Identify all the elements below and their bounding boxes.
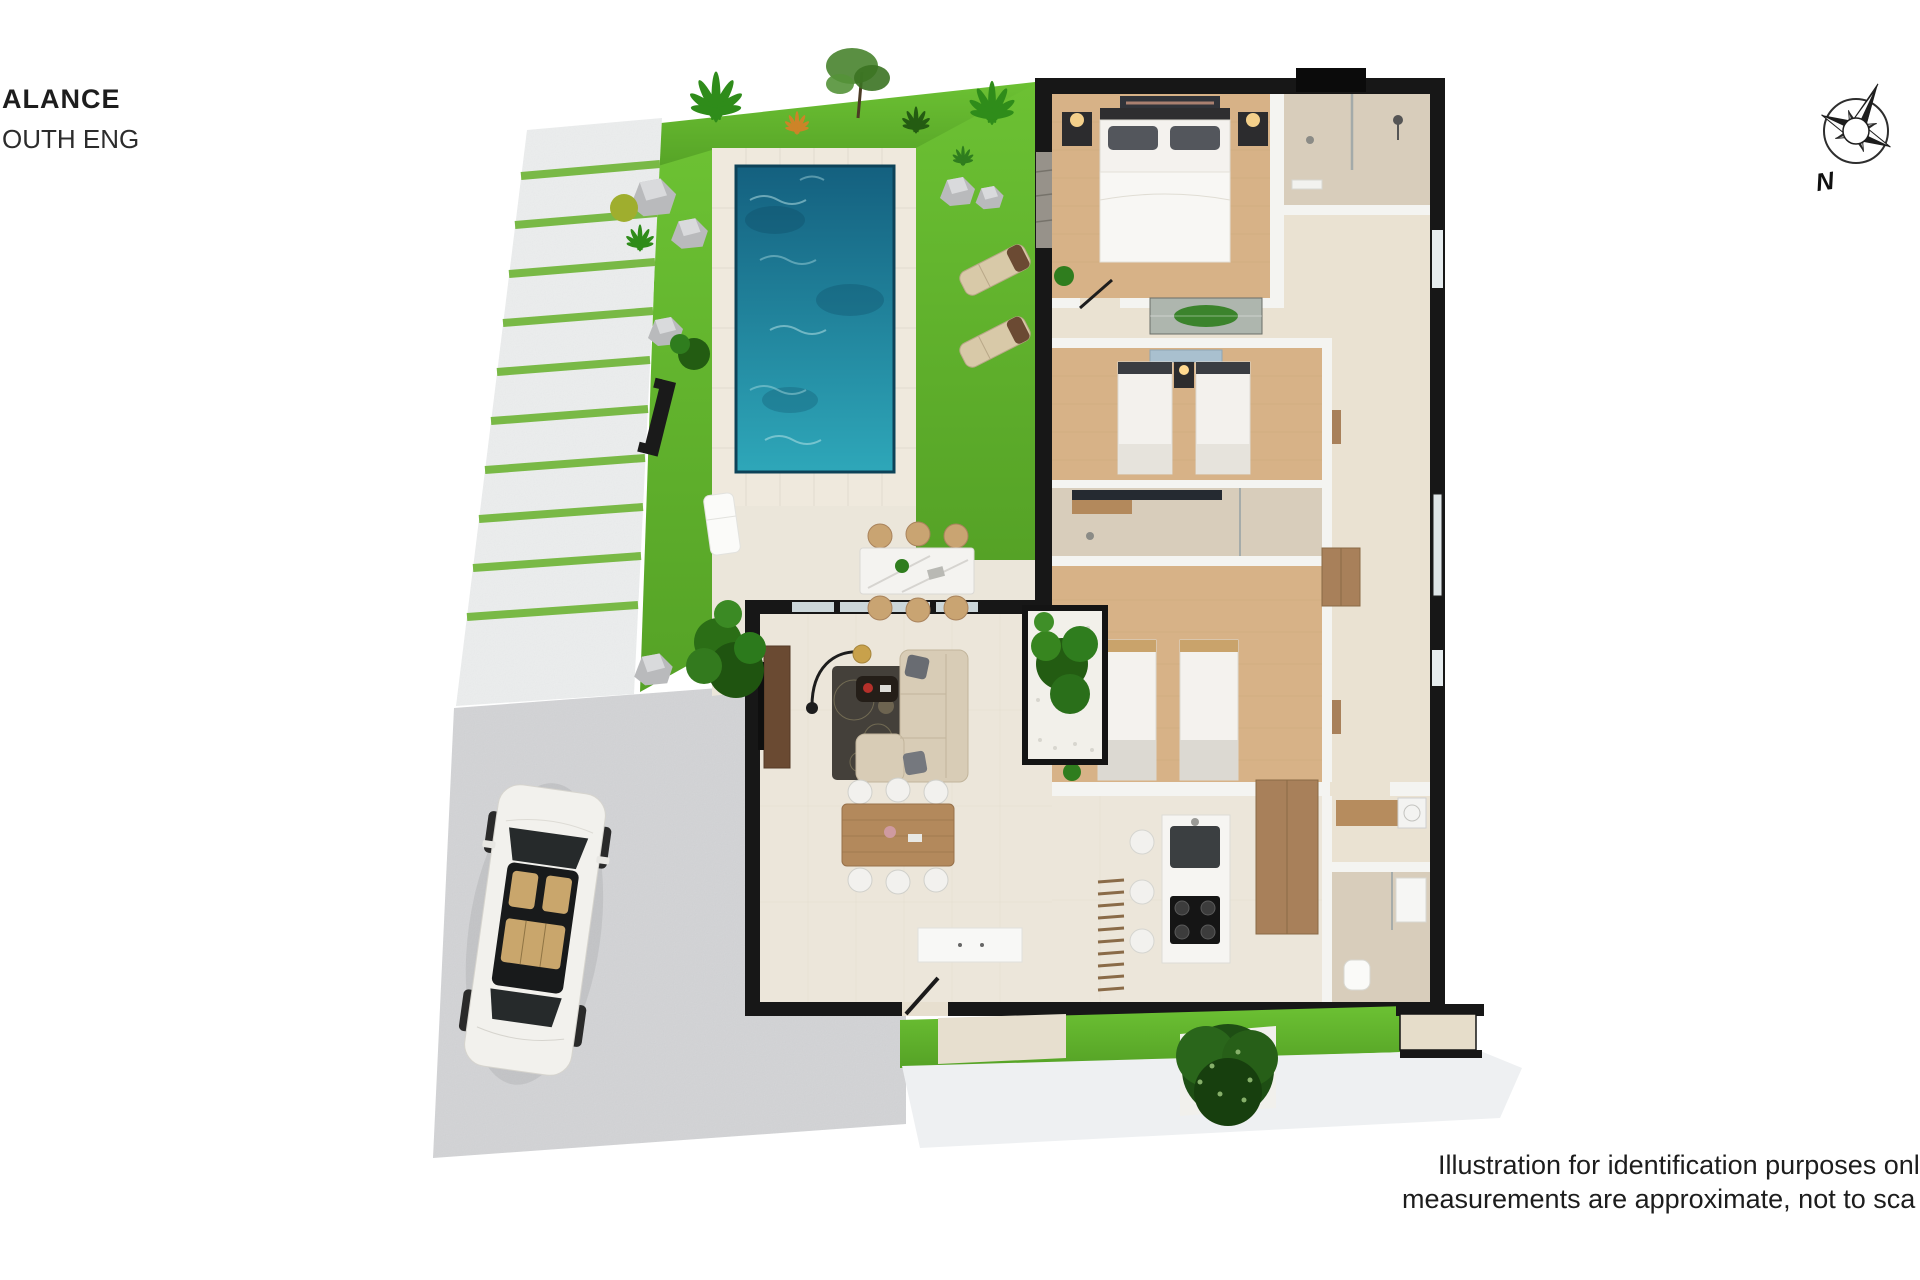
pillow [1108,126,1158,150]
lamp-glow [1179,365,1189,375]
yellow-bush [610,194,638,222]
pillow [902,750,927,775]
stone-window [1036,152,1052,248]
indoor-dining-set [842,778,954,894]
corner-plant [1054,266,1074,286]
console-cabinet [918,928,1022,962]
indoor-patio [1025,608,1105,762]
utility-room [1336,798,1426,828]
corner-plant [1063,763,1081,781]
hall-closet [1150,298,1262,334]
mirror [1072,490,1222,500]
disclaimer-line1: Illustration for identification purposes… [1438,1148,1920,1182]
dining-table [842,804,954,866]
rear-bench [500,918,566,970]
vanity [1072,500,1132,514]
seat [508,870,539,909]
bed [1180,640,1238,780]
twin-bed [1196,362,1250,474]
compass-north-label: N [1814,167,1836,198]
pillow [904,654,930,680]
twin-bed [1118,362,1172,474]
bath-mat [1292,180,1322,189]
compass-rose-icon [1814,68,1913,164]
shower-tray [1396,878,1426,922]
faucet [1191,818,1199,826]
swimming-pool [712,148,916,506]
toilet [1344,960,1370,990]
floor-plan-illustration: ALANCE OUTH ENG N Illustration for ident… [0,0,1920,1280]
coffee-table [856,676,898,702]
lamp-glow [1070,113,1084,127]
seat [542,875,573,914]
roof-recess [1296,68,1366,92]
disclaimer-line2: measurements are approximate, not to sca [1402,1182,1920,1216]
site-plan-svg [0,0,1920,1280]
red-vase [863,683,873,693]
lamp-glow [1246,113,1260,127]
table-plant [895,559,909,573]
south-yard [900,1004,1522,1148]
branding-line1: ALANCE [2,84,121,115]
bar-stools [1130,830,1154,953]
branding-line2: OUTH ENG [2,124,139,155]
sink [1170,826,1220,868]
corridor-floor [1332,215,1430,782]
centerpiece [884,826,896,838]
marble-table [860,548,974,594]
counter [1336,800,1402,826]
disclaimer-text: Illustration for identification purposes… [1402,1148,1920,1216]
entrance-path [938,1014,1066,1064]
porch [1396,1004,1484,1058]
wall-art [1150,350,1222,362]
pillow [1170,126,1220,150]
washer [1398,798,1426,828]
outdoor-dining-set [860,522,974,622]
headboard [1100,108,1230,120]
